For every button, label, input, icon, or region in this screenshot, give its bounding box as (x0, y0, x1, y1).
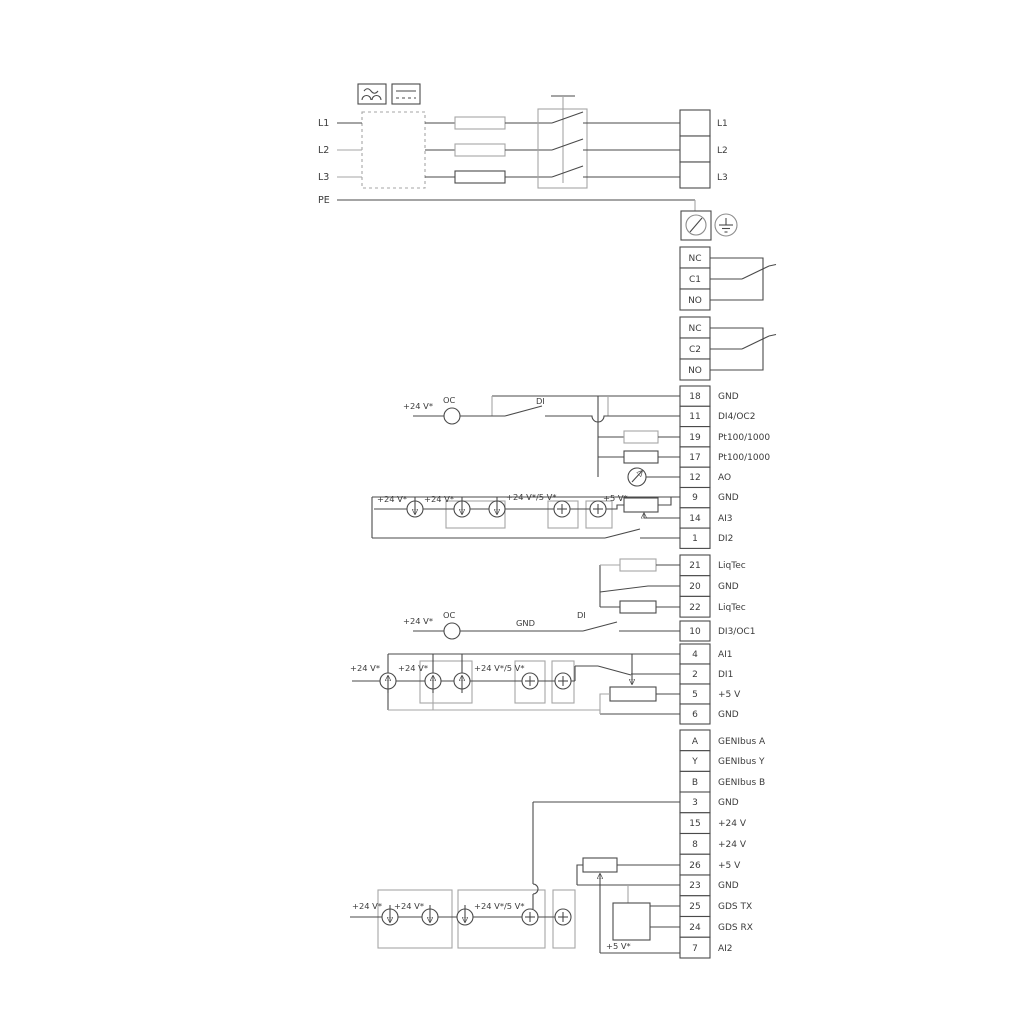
terminal-label: L1 (717, 119, 728, 129)
di-label: DI (536, 396, 545, 406)
v24-label: +24 V* (394, 901, 424, 911)
terminal-number: 25 (689, 902, 700, 912)
terminal-label: DI1 (718, 670, 733, 680)
terminal-number: 22 (689, 603, 700, 613)
v24-label: +24 V* (352, 901, 382, 911)
relay1-block: NC C1 NO (680, 247, 776, 310)
terminal-label: Pt100/1000 (718, 453, 770, 463)
terminal-number: 5 (692, 690, 698, 700)
terminal-number: 15 (689, 819, 700, 829)
bottom-wiring: +24 V* +24 V* +24 V*/5 V* +5 V* (350, 802, 680, 953)
di3-switch-blade (583, 622, 617, 631)
terminal-label: L3 (717, 173, 728, 183)
phase-l3-label: L3 (318, 172, 329, 183)
gds-sensor-box (613, 903, 650, 940)
mains-output-terminal-block: L1 L2 L3 (680, 110, 728, 188)
terminal-number: A (692, 737, 699, 747)
wire (658, 497, 671, 505)
terminal-number: Y (691, 757, 698, 767)
v24-label: +24 V* (403, 616, 433, 626)
wire-hop (533, 884, 538, 894)
terminal-label: GDS TX (718, 902, 752, 912)
terminal-number: 4 (692, 650, 698, 660)
terminal-label: GENIbus A (718, 737, 766, 747)
ac-symbol-box (358, 84, 386, 104)
terminal-number: 14 (689, 514, 701, 524)
terminal-label: AI2 (718, 944, 733, 954)
terminal-label: AI3 (718, 514, 733, 524)
v24-label: +24 V* (398, 663, 428, 673)
v5-label: +5 V* (606, 941, 631, 951)
relay2-contact-blade (742, 336, 769, 349)
ac-symbol-icon (358, 84, 386, 104)
emc-filter-box (362, 112, 425, 188)
liqtec-sensor-1 (620, 559, 656, 571)
ai1-wiring: +24 V* +24 V* +24 V*/5 V* (350, 654, 680, 714)
terminal-label: GENIbus B (718, 778, 765, 788)
terminal-number: NC (688, 324, 701, 334)
terminal-number: 2 (692, 670, 698, 680)
phase-l2-label: L2 (318, 145, 329, 156)
oc-label: OC (443, 395, 456, 405)
terminal-number: 26 (689, 861, 701, 871)
terminal-label: GND (718, 493, 739, 503)
v24-label: +24 V* (424, 494, 454, 504)
terminal-number: NC (688, 254, 701, 264)
terminal-label: LiqTec (718, 603, 746, 613)
v24-label: +24 V* (403, 401, 433, 411)
terminal-number: NO (688, 366, 702, 376)
terminal-number: 7 (692, 944, 698, 954)
terminal-label: +24 V (718, 840, 747, 850)
v24v5-label: +24 V*/5 V* (474, 663, 525, 673)
oc-label: OC (443, 610, 456, 620)
wire (600, 586, 680, 592)
terminal-label: GND (718, 798, 739, 808)
terminal-label: DI4/OC2 (718, 412, 755, 422)
io1-wiring: +24 V* OC DI +24 V* +24 V* +24 V*/5 V* +… (372, 395, 680, 538)
terminal-number: C2 (689, 345, 701, 355)
terminal-label: DI3/OC1 (718, 627, 755, 637)
relay2-block: NC C2 NO (680, 317, 776, 380)
terminal-number: 12 (689, 473, 700, 483)
terminal-label: +5 V (718, 690, 741, 700)
terminal-label: GDS RX (718, 923, 753, 933)
dc-symbol-box (392, 84, 420, 104)
switch-blade-l1 (552, 112, 583, 123)
terminal-label: Pt100/1000 (718, 433, 770, 443)
mains-input-section: L1 L2 L3 PE L1 L2 (318, 84, 737, 240)
relay1-contact-blade (742, 266, 769, 279)
potentiometer-ai1 (610, 687, 656, 701)
terminal-number: C1 (689, 275, 701, 285)
open-collector-icon (444, 408, 460, 424)
gnd-label: GND (516, 618, 535, 628)
schematic-canvas: L1 L2 L3 PE L1 L2 (0, 0, 1024, 1024)
potentiometer-ai2 (583, 858, 617, 872)
liqtec-block: 21 20 22 LiqTec GND LiqTec (600, 555, 746, 617)
terminal-number: 18 (689, 392, 701, 402)
ai1-block: 4 2 5 6 AI1 DI1 +5 V GND (680, 644, 741, 724)
terminal-number: 1 (692, 534, 698, 544)
genibus-block: A Y B GENIbus A GENIbus Y GENIbus B (680, 730, 766, 792)
main-switch (538, 96, 587, 188)
terminal-label: DI2 (718, 534, 733, 544)
pe-terminal-icon (681, 211, 711, 240)
di2-switch-blade (605, 529, 640, 538)
terminal-label: GND (718, 392, 739, 402)
fuse-l2 (455, 144, 505, 156)
terminal-cell (680, 110, 710, 136)
terminal-label: AO (718, 473, 731, 483)
terminal-label: LiqTec (718, 561, 746, 571)
v24v5-label: +24 V*/5 V* (474, 901, 525, 911)
terminal-number: 24 (689, 923, 701, 933)
terminal-cell (680, 162, 710, 188)
terminal-label: GND (718, 582, 739, 592)
switch-blade-l2 (552, 139, 583, 150)
terminal-number: 23 (689, 881, 700, 891)
pt100-sensor-2 (624, 451, 658, 463)
v24v5-label: +24 V*/5 V* (506, 492, 557, 502)
wire (600, 694, 610, 714)
relay1-contact-tick (769, 265, 776, 267)
open-collector-icon (444, 623, 460, 639)
terminal-number: 17 (689, 453, 700, 463)
pe-label: PE (318, 195, 330, 206)
wire (577, 865, 583, 885)
wire-with-hop (545, 416, 680, 422)
io-block-1: 18 11 19 17 12 9 14 1 GND DI4/OC2 Pt100/… (680, 386, 770, 548)
wire (388, 710, 600, 714)
terminal-label: L2 (717, 146, 728, 156)
potentiometer-ai3 (624, 498, 658, 512)
pt100-sensor-1 (624, 431, 658, 443)
terminal-number: 9 (692, 493, 698, 503)
phase-l1-label: L1 (318, 118, 329, 129)
v24-label: +24 V* (350, 663, 380, 673)
terminal-number: 8 (692, 840, 698, 850)
liqtec-sensor-2 (620, 601, 656, 613)
terminal-number: 6 (692, 710, 698, 720)
fuse-l1 (455, 117, 505, 129)
terminal-label: +24 V (718, 819, 747, 829)
terminal-number: 3 (692, 798, 698, 808)
di-switch-blade (505, 406, 542, 416)
terminal-label: GND (718, 710, 739, 720)
terminal-number: NO (688, 296, 702, 306)
v24-label: +24 V* (377, 494, 407, 504)
earth-icon (715, 214, 737, 236)
relay2-contact-tick (769, 335, 776, 337)
wiring-diagram: L1 L2 L3 PE L1 L2 (0, 0, 1024, 1024)
bottom-io-block: 3 15 8 26 23 25 24 7 GND +24 V +24 V +5 … (680, 792, 753, 958)
terminal-number: 21 (689, 561, 700, 571)
terminal-number: 10 (689, 627, 701, 637)
terminal-cell (680, 136, 710, 162)
fuse-l3 (455, 171, 505, 183)
terminal-number: 19 (689, 433, 701, 443)
terminal-number: 20 (689, 582, 701, 592)
terminal-label: GENIbus Y (718, 757, 765, 767)
terminal-number: 11 (689, 412, 700, 422)
terminal-label: AI1 (718, 650, 733, 660)
terminal-number: B (692, 778, 698, 788)
di-label: DI (577, 610, 586, 620)
switch-blade-l3 (552, 166, 583, 177)
dc-symbol-icon (392, 84, 420, 104)
terminal-label: GND (718, 881, 739, 891)
di1-switch-blade (598, 666, 631, 675)
terminal-label: +5 V (718, 861, 741, 871)
